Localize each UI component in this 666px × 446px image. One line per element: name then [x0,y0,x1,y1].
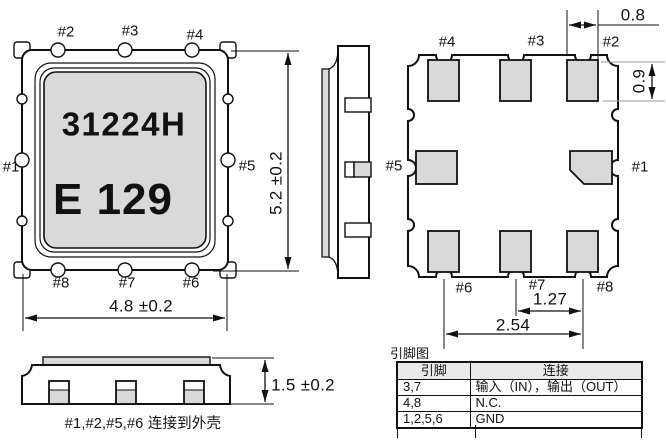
pin-table-title: 引脚图 [390,347,429,360]
dim-pitch-1-27: 1.27 [533,291,567,308]
dim-pad-width-0-8: 0.8 [621,7,646,24]
package-drawing: 31224H E 129 #2 #3 #4 #1 #5 #8 #7 #6 #4 … [0,0,666,446]
dim-span-2-54: 2.54 [496,317,530,334]
table-row: 3,7 输入（IN），输出（OUT） [397,380,642,396]
top-view-pin5-label: #5 [239,159,256,174]
pin-table-header-connection: 连接 [470,362,642,380]
top-view-pin8-label: #8 [53,276,70,291]
side-view [322,46,371,278]
pin-table-header-row: 引脚 连接 [397,362,642,380]
front-view-lid [43,357,210,365]
pin-cell: 3,7 [397,380,470,396]
top-view-pin3-label: #3 [122,24,139,39]
bottom-view [408,55,618,277]
top-view-pin4-label: #4 [187,28,204,43]
table-row: 1,2,5,6 GND [397,412,642,429]
dim-thickness-1-5: 1.5 ±0.2 [271,377,335,394]
top-view-pin1-label: #1 [3,160,20,175]
bottom-view-pin2-label: #2 [603,35,620,50]
top-view-pin6-label: #6 [183,276,200,291]
connection-cell: GND [470,412,642,429]
top-view-outline [14,42,236,278]
dim-height-5-2: 5.2 ±0.2 [268,151,285,215]
front-view [22,357,230,404]
connection-cell: N.C. [470,396,642,412]
side-view-pad [354,162,371,177]
pin-table: 引脚 连接 3,7 输入（IN），输出（OUT） 4,8 N.C. 1,2,5,… [396,361,643,429]
bottom-view-pin4-label: #4 [439,35,456,50]
bottom-view-pin1-label: #1 [632,160,649,175]
pin-table-header-pin: 引脚 [397,362,470,380]
bottom-view-pin8-label: #8 [597,280,614,295]
marking-line1: 31224H [62,108,187,141]
bottom-view-pin5-label: #5 [386,159,403,174]
top-view-pin7-label: #7 [119,276,136,291]
marking-line2: E 129 [53,178,173,222]
pin-cell: 1,2,5,6 [397,412,470,429]
bottom-view-pin6-label: #6 [456,281,473,296]
bottom-view-pin3-label: #3 [528,34,545,49]
dim-pad-height-0-9: 0.9 [631,69,648,94]
top-view-pin2-label: #2 [58,25,75,40]
side-view-lid-strip [322,69,329,257]
pin-cell: 4,8 [397,396,470,412]
dim-width-4-8: 4.8 ±0.2 [109,298,173,315]
connection-cell: 输入（IN），输出（OUT） [470,380,642,396]
table-row: 4,8 N.C. [397,396,642,412]
case-connection-note: #1,#2,#5,#6 连接到外壳 [65,417,222,432]
